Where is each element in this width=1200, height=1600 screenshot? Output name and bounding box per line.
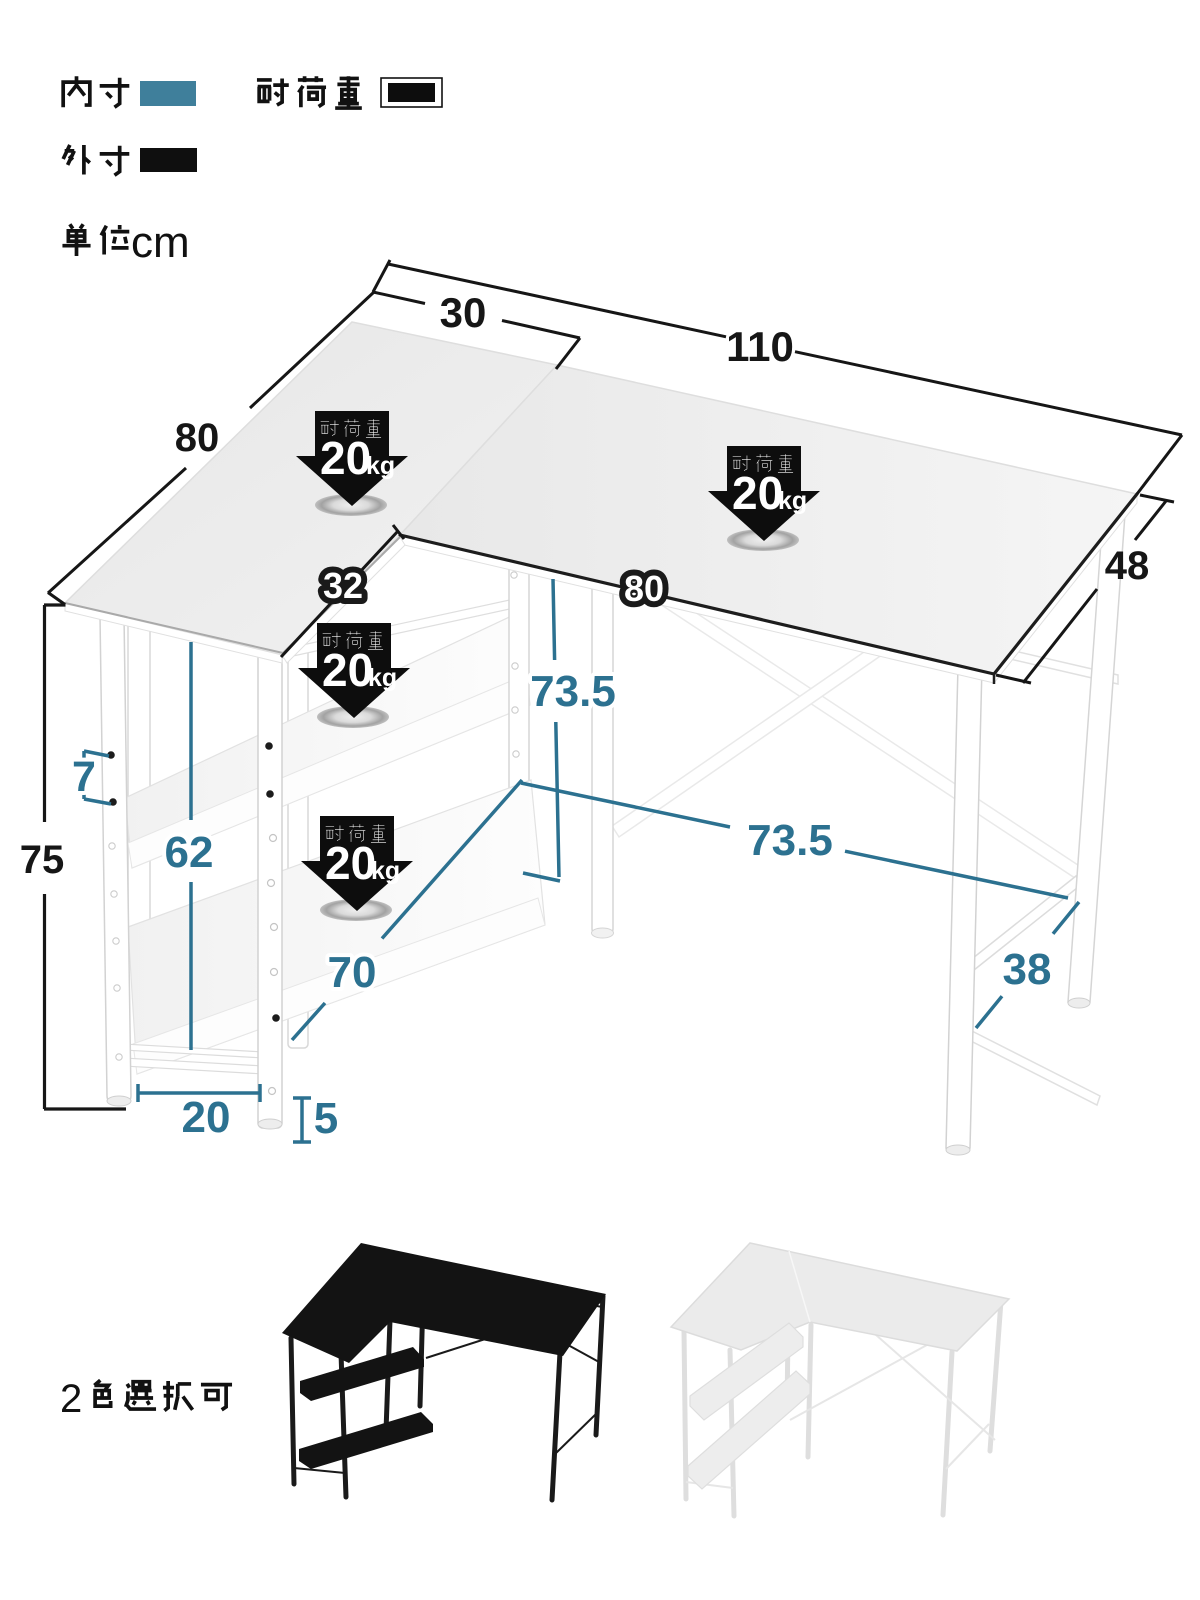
svg-text:75: 75: [20, 838, 65, 882]
svg-text:20: 20: [325, 837, 376, 889]
svg-text:kg: kg: [366, 452, 395, 480]
svg-text:73.5: 73.5: [530, 667, 616, 716]
svg-text:110: 110: [726, 323, 794, 370]
svg-text:cm: cm: [131, 218, 190, 267]
svg-text:20: 20: [732, 467, 783, 519]
svg-text:20: 20: [320, 432, 371, 484]
svg-text:62: 62: [165, 828, 214, 877]
svg-text:20: 20: [322, 644, 373, 696]
svg-text:32: 32: [323, 565, 363, 606]
svg-text:70: 70: [328, 948, 377, 997]
svg-text:7: 7: [72, 753, 96, 801]
svg-text:kg: kg: [368, 664, 397, 692]
svg-text:2: 2: [60, 1377, 82, 1421]
svg-text:30: 30: [440, 289, 487, 336]
svg-text:5: 5: [314, 1094, 338, 1143]
svg-text:20: 20: [182, 1093, 231, 1142]
svg-text:80: 80: [175, 416, 220, 460]
svg-text:80: 80: [624, 568, 664, 609]
svg-text:kg: kg: [778, 487, 807, 515]
svg-text:kg: kg: [371, 857, 400, 885]
svg-text:73.5: 73.5: [747, 816, 833, 865]
svg-text:48: 48: [1105, 544, 1150, 588]
svg-text:38: 38: [1003, 945, 1052, 994]
